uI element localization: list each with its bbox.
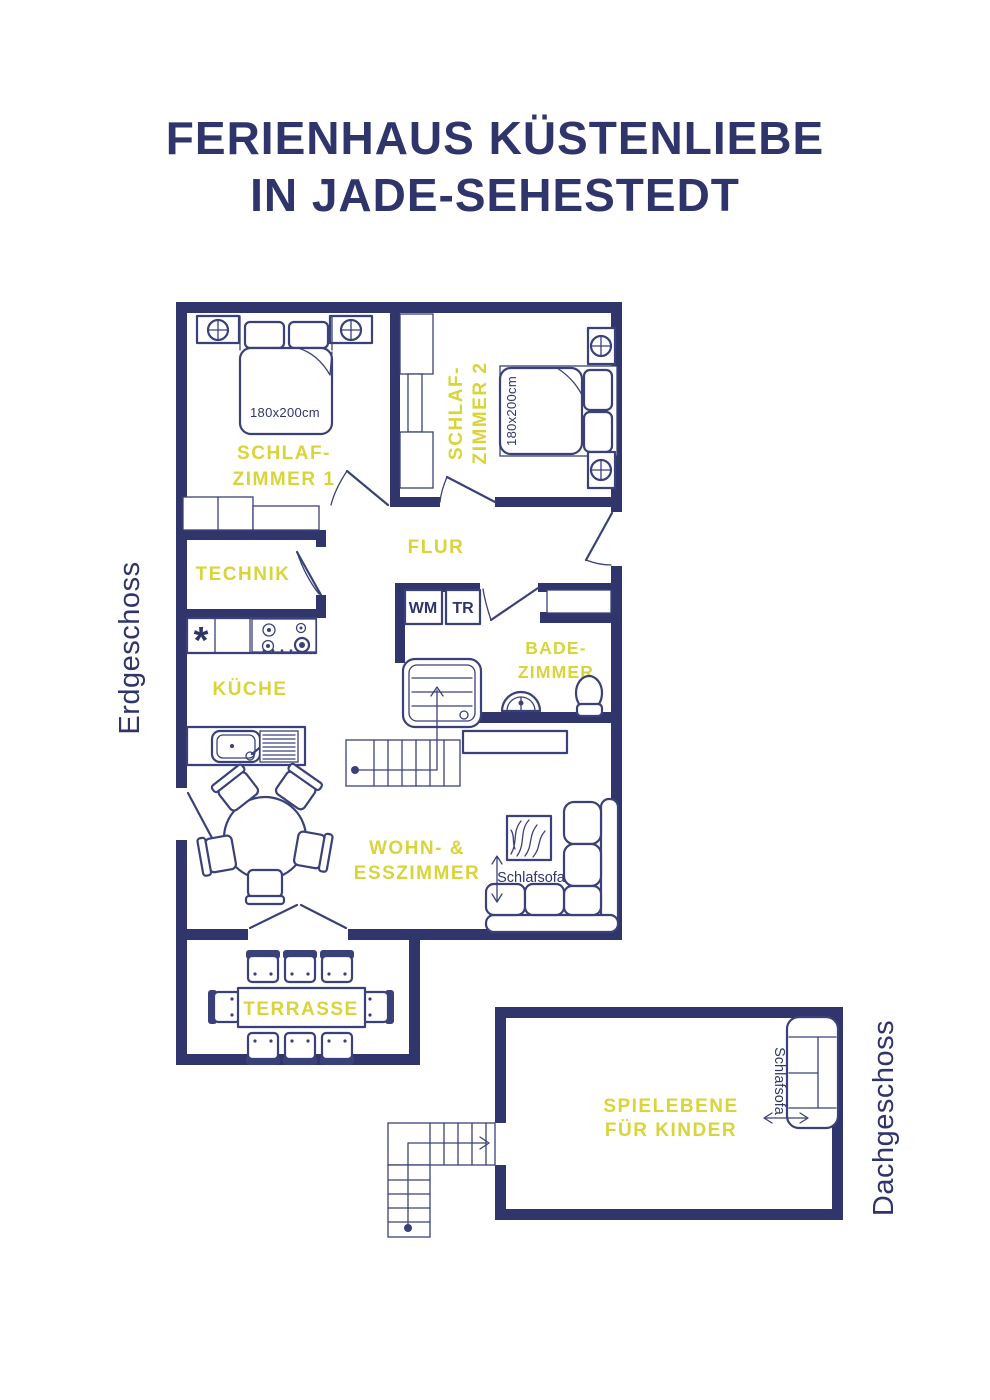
- wohnzimmer-label-line1: WOHN- &: [369, 838, 465, 859]
- bed-size-label: 180x200cm: [250, 405, 320, 420]
- terrasse-label: TERRASSE: [243, 999, 358, 1020]
- chair: [293, 829, 333, 872]
- kitchen-counter-stove: *: [187, 618, 316, 662]
- floorplan-drawing: Erdgeschoss Dachgeschoss: [0, 0, 990, 1400]
- chair: [246, 870, 284, 904]
- room-badezimmer: WM TR BADE- ZIMMER: [403, 588, 611, 727]
- terrace-double-door: [250, 905, 346, 928]
- badezimmer-label-line1: BADE-: [525, 638, 586, 658]
- wardrobe: [400, 314, 433, 488]
- stairs-attic: [388, 1123, 495, 1237]
- side-door: [188, 793, 212, 838]
- attic-floor: SPIELEBENE FÜR KINDER Schlafsofa: [388, 1007, 843, 1237]
- bed-size-label: 180x200cm: [504, 376, 519, 446]
- washing-machine: WM: [405, 590, 442, 624]
- shower-icon: [403, 659, 481, 727]
- spielebene-label-line1: SPIELEBENE: [603, 1096, 738, 1117]
- chair: [320, 950, 354, 982]
- chair: [197, 833, 237, 876]
- attic-sofa: [787, 1017, 838, 1128]
- floorplan-page: FERIENHAUS KÜSTENLIEBE IN JADE-SEHESTEDT…: [0, 0, 990, 1400]
- dryer-label: TR: [452, 600, 474, 617]
- schlafzimmer2-label-line2: ZIMMER 2: [470, 362, 491, 465]
- door-schlafzimmer1: [331, 471, 388, 505]
- attic-floor-label: Dachgeschoss: [868, 1020, 900, 1216]
- sideboard: [463, 731, 567, 753]
- bathroom-cabinet: [547, 590, 611, 613]
- kueche-label: KÜCHE: [212, 679, 287, 700]
- washbasin-icon: [502, 692, 540, 711]
- chair: [246, 1033, 280, 1065]
- room-terrasse: TERRASSE: [176, 929, 420, 1065]
- schlafzimmer1-label-line2: ZIMMER 1: [233, 469, 336, 490]
- side-table-wood: [507, 816, 551, 860]
- chair: [283, 1033, 317, 1065]
- room-schlafzimmer1: 180x200cm SCHLAF- ZIMMER 1: [183, 316, 388, 530]
- nightstand: [330, 316, 372, 343]
- chair: [246, 950, 280, 982]
- schlafzimmer2-label-line1: SCHLAF-: [446, 366, 467, 460]
- ground-floor: 180x200cm SCHLAF- ZIMMER 1: [176, 302, 622, 1065]
- room-technik: TECHNIK: [196, 552, 321, 595]
- entrance-door: [586, 513, 612, 565]
- stove-icon: [252, 619, 316, 652]
- wohnzimmer-label-line2: ESSZIMMER: [354, 863, 480, 884]
- door-technik: [297, 552, 321, 595]
- schlafsofa-label: Schlafsofa: [771, 1047, 787, 1116]
- room-schlafzimmer2: 180x200cm SCHLAF- ZIMMER 2: [400, 314, 617, 502]
- chair: [283, 950, 317, 982]
- nightstand: [588, 328, 615, 364]
- dryer: TR: [446, 590, 480, 624]
- schlafsofa-label: Schlafsofa: [497, 870, 566, 886]
- dishwasher-symbol: *: [194, 620, 209, 662]
- door-badezimmer: [483, 588, 538, 620]
- schlafzimmer1-label-line1: SCHLAF-: [237, 443, 331, 464]
- chair: [362, 990, 394, 1024]
- toilet-icon: [576, 676, 602, 716]
- sink-icon: [212, 731, 263, 762]
- nightstand: [197, 316, 239, 343]
- spielebene-label-line2: FÜR KINDER: [605, 1120, 737, 1141]
- drainboard-icon: [260, 731, 298, 762]
- washer-label: WM: [409, 600, 437, 617]
- room-flur: FLUR: [408, 513, 612, 565]
- wardrobe: [183, 497, 319, 530]
- door-schlafzimmer2: [440, 477, 495, 502]
- flur-label: FLUR: [408, 537, 465, 558]
- ground-floor-label: Erdgeschoss: [114, 561, 146, 734]
- chair: [208, 990, 240, 1024]
- chair: [320, 1033, 354, 1065]
- kitchen-counter-sink: [187, 727, 305, 765]
- technik-label: TECHNIK: [196, 564, 291, 585]
- nightstand: [588, 452, 615, 488]
